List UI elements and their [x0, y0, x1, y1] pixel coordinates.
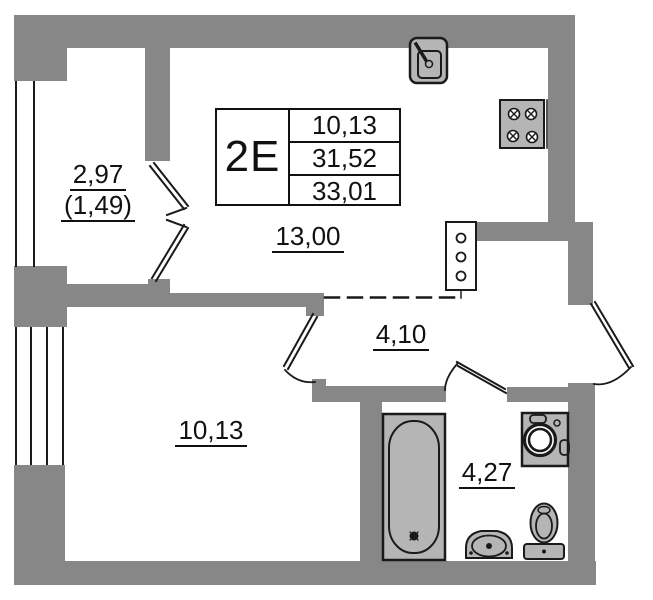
plan-symbols-layer [0, 0, 653, 600]
unit-type-label: 2Е [217, 110, 290, 204]
unit-living-area: 10,13 [290, 110, 399, 141]
balcony-area-reduced-value: (1,49) [61, 191, 135, 222]
bathtub-icon [383, 414, 445, 560]
kitchen-sink-icon [410, 38, 447, 83]
kitchen-living-area-label: 13,00 [263, 222, 353, 253]
balcony-area-value: 2,97 [70, 160, 127, 191]
unit-info-table: 2Е 10,13 31,52 33,01 [215, 108, 401, 206]
bedroom-area-label: 10,13 [166, 416, 256, 447]
unit-total-area: 33,01 [290, 174, 399, 207]
hallway-area-label: 4,10 [356, 320, 446, 351]
bedroom-door [284, 314, 317, 382]
bathroom-area-label: 4,27 [442, 458, 532, 489]
toilet-icon [524, 504, 564, 560]
bathroom-door [445, 362, 506, 393]
entrance-door [591, 302, 633, 384]
plumbing-shaft-icon [446, 222, 476, 298]
unit-area-without-balcony: 31,52 [290, 141, 399, 174]
washbasin-icon [466, 531, 512, 558]
balcony-door [150, 163, 188, 281]
unit-area-rows: 10,13 31,52 33,01 [290, 110, 399, 204]
floor-plan: 2Е 10,13 31,52 33,01 2,97 (1,49) 13,00 4… [0, 0, 653, 600]
balcony-area-label: 2,97 (1,49) [43, 160, 153, 222]
stove-icon [500, 100, 547, 148]
